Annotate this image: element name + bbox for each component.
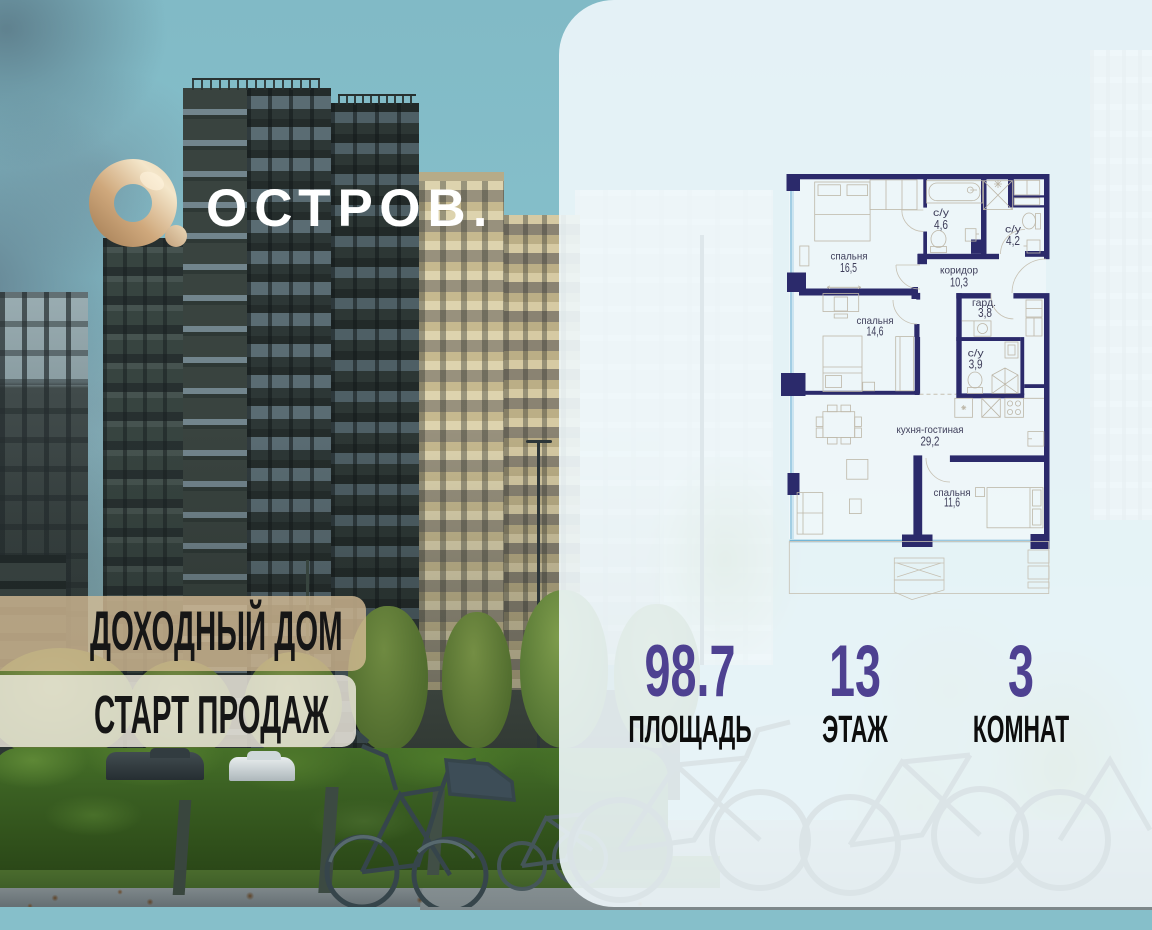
svg-text:14,6: 14,6 (867, 325, 884, 339)
svg-text:11,6: 11,6 (944, 496, 960, 510)
svg-text:ОСТРОВ.: ОСТРОВ. (206, 179, 494, 238)
svg-text:16,5: 16,5 (840, 261, 857, 275)
svg-text:3,8: 3,8 (978, 306, 992, 320)
svg-text:10,3: 10,3 (950, 276, 968, 290)
svg-text:3,9: 3,9 (969, 358, 983, 372)
svg-text:4,6: 4,6 (934, 218, 948, 232)
svg-text:29,2: 29,2 (921, 435, 940, 449)
svg-text:4,2: 4,2 (1006, 234, 1020, 248)
